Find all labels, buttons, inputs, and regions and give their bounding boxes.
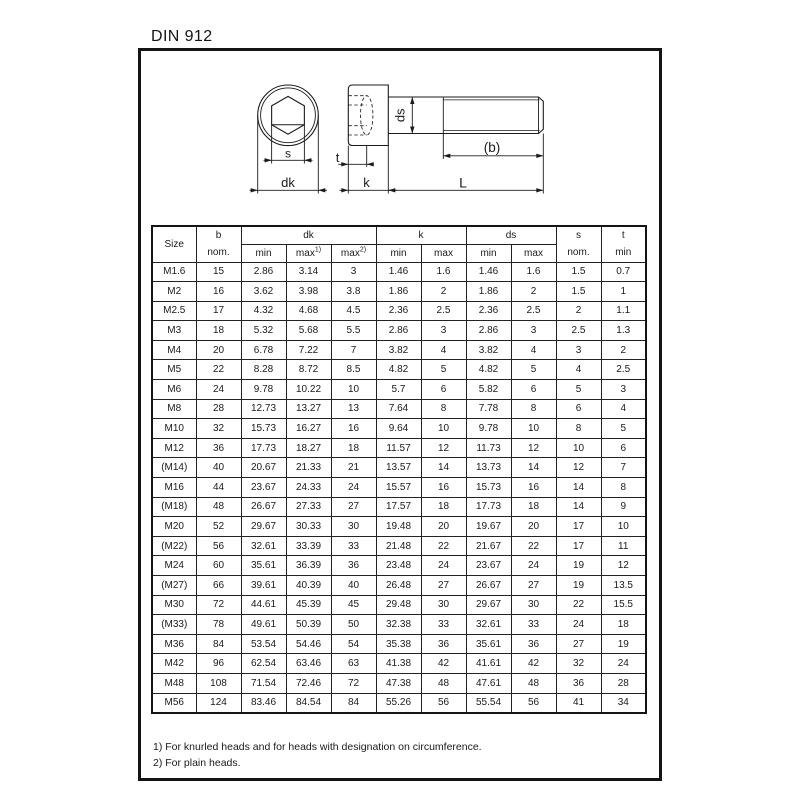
table-cell: 8.28 xyxy=(241,360,286,380)
table-cell: 54.46 xyxy=(286,634,331,654)
table-cell: 1.1 xyxy=(601,301,646,321)
table-cell: 24 xyxy=(196,380,241,400)
table-cell: 41.38 xyxy=(376,654,421,674)
table-cell: 36 xyxy=(511,634,556,654)
table-cell: 2.5 xyxy=(601,360,646,380)
hex-socket-outline xyxy=(272,96,305,134)
table-row: M205229.6730.333019.482019.67201710 xyxy=(152,517,646,537)
table-cell: 48 xyxy=(511,673,556,693)
table-cell: 50 xyxy=(331,615,376,635)
table-cell: 20 xyxy=(511,517,556,537)
table-cell: 1 xyxy=(601,282,646,302)
table-cell: 2.5 xyxy=(421,301,466,321)
table-cell: 29.67 xyxy=(241,517,286,537)
table-cell: 23.67 xyxy=(241,478,286,498)
table-cell: 12 xyxy=(556,458,601,478)
page-title: DIN 912 xyxy=(151,28,213,46)
table-cell: 24 xyxy=(556,615,601,635)
table-row: M429662.5463.466341.384241.61423224 xyxy=(152,654,646,674)
table-cell: 4.82 xyxy=(376,360,421,380)
table-cell: 29.67 xyxy=(466,595,511,615)
table-cell: 33.39 xyxy=(286,536,331,556)
table-cell: 19.48 xyxy=(376,517,421,537)
table-cell: 18.27 xyxy=(286,438,331,458)
col-header-k: k xyxy=(376,226,466,244)
table-cell: 41.61 xyxy=(466,654,511,674)
col-header-dk: dk xyxy=(241,226,376,244)
table-cell: 21.48 xyxy=(376,536,421,556)
col-subheader-dk-max1: max1) xyxy=(286,244,331,262)
table-cell: 2 xyxy=(421,282,466,302)
table-cell: 48 xyxy=(421,673,466,693)
table-cell: 56 xyxy=(511,693,556,713)
table-cell: 35.38 xyxy=(376,634,421,654)
screw-side-view: ds t k (b) xyxy=(336,85,544,194)
table-row: M4206.787.2273.8243.82432 xyxy=(152,340,646,360)
table-cell: 3 xyxy=(421,321,466,341)
table-cell: 19 xyxy=(556,556,601,576)
table-cell: 27.33 xyxy=(286,497,331,517)
table-cell: 5 xyxy=(556,380,601,400)
table-cell: 24 xyxy=(421,556,466,576)
table-row: M164423.6724.332415.571615.7316148 xyxy=(152,478,646,498)
table-cell: 4.68 xyxy=(286,301,331,321)
table-cell: 32.61 xyxy=(466,615,511,635)
table-cell: 6 xyxy=(511,380,556,400)
table-cell: 3.82 xyxy=(376,340,421,360)
table-cell: 2.5 xyxy=(511,301,556,321)
table-cell: 30.33 xyxy=(286,517,331,537)
table-cell: 26.67 xyxy=(241,497,286,517)
dk-max2-label: max xyxy=(341,248,360,259)
table-cell: 6 xyxy=(421,380,466,400)
table-row: M82812.7313.27137.6487.78864 xyxy=(152,399,646,419)
table-cell: 14 xyxy=(511,458,556,478)
dk-max2-footref: 2) xyxy=(360,246,366,253)
table-cell: 83.46 xyxy=(241,693,286,713)
table-cell: 9.78 xyxy=(466,419,511,439)
col-subheader-ds-max: max xyxy=(511,244,556,262)
table-cell: 40 xyxy=(331,576,376,596)
table-cell: 19.67 xyxy=(466,517,511,537)
dk-max1-footref: 1) xyxy=(315,246,321,253)
table-cell: 10 xyxy=(601,517,646,537)
table-cell: 39.61 xyxy=(241,576,286,596)
table-cell: M42 xyxy=(152,654,196,674)
table-cell: 16 xyxy=(421,478,466,498)
table-cell: M36 xyxy=(152,634,196,654)
table-cell: 5.5 xyxy=(331,321,376,341)
table-row: M368453.5454.465435.383635.61362719 xyxy=(152,634,646,654)
head-outline xyxy=(348,85,388,146)
table-cell: 21.33 xyxy=(286,458,331,478)
table-cell: M10 xyxy=(152,419,196,439)
table-cell: 14 xyxy=(556,497,601,517)
table-cell: 9.64 xyxy=(376,419,421,439)
head-top-view: s dk xyxy=(250,85,328,194)
table-cell: 24 xyxy=(511,556,556,576)
table-row: M4810871.5472.467247.384847.61483628 xyxy=(152,673,646,693)
table-cell: 2.5 xyxy=(556,321,601,341)
table-cell: 124 xyxy=(196,693,241,713)
table-cell: 0.7 xyxy=(601,262,646,282)
table-cell: 26.48 xyxy=(376,576,421,596)
table-cell: 4 xyxy=(601,399,646,419)
table-cell: 13 xyxy=(331,399,376,419)
table-cell: 2 xyxy=(601,340,646,360)
col-header-b: b nom. xyxy=(196,226,241,262)
table-cell: 72 xyxy=(196,595,241,615)
table-row: (M14)4020.6721.332113.571413.7314127 xyxy=(152,458,646,478)
table-cell: 40 xyxy=(196,458,241,478)
dim-label-b: (b) xyxy=(484,140,501,155)
table-row: M1.6152.863.1431.461.61.461.61.50.7 xyxy=(152,262,646,282)
table-cell: 63.46 xyxy=(286,654,331,674)
table-cell: 1.6 xyxy=(511,262,556,282)
table-cell: 41 xyxy=(556,693,601,713)
table-cell: 33 xyxy=(421,615,466,635)
table-cell: 52 xyxy=(196,517,241,537)
table-cell: 28 xyxy=(601,673,646,693)
table-cell: 12 xyxy=(511,438,556,458)
table-cell: 32.38 xyxy=(376,615,421,635)
table-cell: 8 xyxy=(556,419,601,439)
table-row: M5228.288.728.54.8254.82542.5 xyxy=(152,360,646,380)
table-cell: 1.46 xyxy=(376,262,421,282)
table-cell: 36 xyxy=(556,673,601,693)
dim-label-l: L xyxy=(459,175,467,191)
table-row: (M22)5632.6133.393321.482221.67221711 xyxy=(152,536,646,556)
table-cell: M5 xyxy=(152,360,196,380)
table-cell: 9.78 xyxy=(241,380,286,400)
table-cell: 18 xyxy=(331,438,376,458)
table-cell: 10.22 xyxy=(286,380,331,400)
table-cell: 32 xyxy=(196,419,241,439)
table-cell: 17.73 xyxy=(466,497,511,517)
table-cell: 4 xyxy=(556,360,601,380)
table-cell: 17.73 xyxy=(241,438,286,458)
table-cell: M48 xyxy=(152,673,196,693)
table-cell: 15 xyxy=(196,262,241,282)
table-cell: 20.67 xyxy=(241,458,286,478)
dim-t xyxy=(338,146,374,167)
table-cell: 4.82 xyxy=(466,360,511,380)
table-cell: 96 xyxy=(196,654,241,674)
table-cell: 24 xyxy=(331,478,376,498)
hex-socket-hidden xyxy=(349,96,373,135)
table-cell: 13.73 xyxy=(466,458,511,478)
table-cell: 15.5 xyxy=(601,595,646,615)
table-cell: M3 xyxy=(152,321,196,341)
table-cell: 34 xyxy=(601,693,646,713)
table-cell: 3 xyxy=(511,321,556,341)
header-row-groups: Size b nom. dk k ds s nom. t min xyxy=(152,226,646,244)
table-cell: 71.54 xyxy=(241,673,286,693)
table-cell: 72 xyxy=(331,673,376,693)
col-subheader-k-min: min xyxy=(376,244,421,262)
table-cell: 36.39 xyxy=(286,556,331,576)
table-cell: 5.32 xyxy=(241,321,286,341)
table-cell: 14 xyxy=(421,458,466,478)
table-cell: 16.27 xyxy=(286,419,331,439)
table-cell: 8.72 xyxy=(286,360,331,380)
col-subheader-dk-max2: max2) xyxy=(331,244,376,262)
table-row: M3185.325.685.52.8632.8632.51.3 xyxy=(152,321,646,341)
table-cell: M6 xyxy=(152,380,196,400)
table-cell: 15.73 xyxy=(466,478,511,498)
col-header-s-label: s xyxy=(557,227,601,244)
col-header-t: t min xyxy=(601,226,646,262)
spec-table: Size b nom. dk k ds s nom. t min min max… xyxy=(151,225,647,714)
table-cell: 3 xyxy=(601,380,646,400)
table-cell: (M27) xyxy=(152,576,196,596)
table-cell: 2 xyxy=(556,301,601,321)
table-cell: (M33) xyxy=(152,615,196,635)
table-cell: 4.5 xyxy=(331,301,376,321)
table-cell: M2.5 xyxy=(152,301,196,321)
table-cell: 27 xyxy=(556,634,601,654)
table-cell: 56 xyxy=(196,536,241,556)
table-cell: 47.38 xyxy=(376,673,421,693)
table-cell: 16 xyxy=(511,478,556,498)
table-cell: 4 xyxy=(421,340,466,360)
table-cell: M56 xyxy=(152,693,196,713)
table-cell: 35.61 xyxy=(241,556,286,576)
table-cell: 24.33 xyxy=(286,478,331,498)
table-cell: 26.67 xyxy=(466,576,511,596)
table-cell: 1.6 xyxy=(421,262,466,282)
table-cell: 8 xyxy=(511,399,556,419)
table-cell: 15.73 xyxy=(241,419,286,439)
table-cell: M24 xyxy=(152,556,196,576)
table-cell: 12 xyxy=(421,438,466,458)
table-cell: 12.73 xyxy=(241,399,286,419)
table-row: M307244.6145.394529.483029.67302215.5 xyxy=(152,595,646,615)
table-cell: 36 xyxy=(196,438,241,458)
table-cell: 33 xyxy=(511,615,556,635)
table-cell: 3.14 xyxy=(286,262,331,282)
col-subheader-k-max: max xyxy=(421,244,466,262)
table-cell: 1.86 xyxy=(466,282,511,302)
footnote-1: 1) For knurled heads and for heads with … xyxy=(153,741,482,753)
table-cell: 27 xyxy=(331,497,376,517)
table-cell: 19 xyxy=(556,576,601,596)
table-cell: (M22) xyxy=(152,536,196,556)
col-header-b-label: b xyxy=(197,227,241,244)
table-cell: M16 xyxy=(152,478,196,498)
table-cell: 44 xyxy=(196,478,241,498)
col-header-t-label: t xyxy=(602,227,646,244)
table-cell: 11 xyxy=(601,536,646,556)
table-cell: 3.8 xyxy=(331,282,376,302)
table-cell: 5 xyxy=(421,360,466,380)
table-cell: 1.5 xyxy=(556,282,601,302)
col-header-size: Size xyxy=(152,226,196,262)
table-cell: 17 xyxy=(556,536,601,556)
table-cell: 2.86 xyxy=(466,321,511,341)
table-cell: 36 xyxy=(331,556,376,576)
col-subheader-ds-min: min xyxy=(466,244,511,262)
table-cell: 17 xyxy=(196,301,241,321)
table-cell: 22 xyxy=(196,360,241,380)
table-cell: 66 xyxy=(196,576,241,596)
table-cell: 12 xyxy=(601,556,646,576)
table-cell: 5.7 xyxy=(376,380,421,400)
table-cell: 7.22 xyxy=(286,340,331,360)
table-cell: 10 xyxy=(331,380,376,400)
table-cell: 9 xyxy=(601,497,646,517)
technical-drawing: s dk xyxy=(240,58,560,200)
col-header-ds: ds xyxy=(466,226,556,244)
table-cell: 27 xyxy=(511,576,556,596)
spec-table-body: M1.6152.863.1431.461.61.461.61.50.7M2163… xyxy=(152,262,646,713)
table-cell: 17 xyxy=(556,517,601,537)
table-cell: 10 xyxy=(511,419,556,439)
table-cell: 84 xyxy=(331,693,376,713)
table-cell: 55.26 xyxy=(376,693,421,713)
table-cell: 53.54 xyxy=(241,634,286,654)
table-cell: 30 xyxy=(511,595,556,615)
col-header-b-sub: nom. xyxy=(197,244,241,261)
table-cell: 47.61 xyxy=(466,673,511,693)
table-row: M103215.7316.27169.64109.781085 xyxy=(152,419,646,439)
table-cell: 42 xyxy=(511,654,556,674)
table-cell: 30 xyxy=(331,517,376,537)
table-cell: 7.78 xyxy=(466,399,511,419)
table-cell: 49.61 xyxy=(241,615,286,635)
table-cell: 8.5 xyxy=(331,360,376,380)
dk-max1-label: max xyxy=(296,248,315,259)
table-cell: 2.86 xyxy=(376,321,421,341)
table-row: M5612483.4684.548455.265655.54564134 xyxy=(152,693,646,713)
table-cell: 28 xyxy=(196,399,241,419)
table-cell: 63 xyxy=(331,654,376,674)
table-cell: 48 xyxy=(196,497,241,517)
table-cell: 18 xyxy=(196,321,241,341)
din-912-sheet: { "page": { "title": "DIN 912" }, "drawi… xyxy=(0,0,800,800)
table-cell: 24 xyxy=(601,654,646,674)
table-row: M123617.7318.271811.571211.7312106 xyxy=(152,438,646,458)
table-cell: 27 xyxy=(421,576,466,596)
table-cell: 4 xyxy=(511,340,556,360)
table-cell: 60 xyxy=(196,556,241,576)
table-cell: 22 xyxy=(556,595,601,615)
table-cell: 7 xyxy=(601,458,646,478)
table-cell: 10 xyxy=(556,438,601,458)
footnote-2: 2) For plain heads. xyxy=(153,757,241,769)
table-cell: 7.64 xyxy=(376,399,421,419)
table-cell: 14 xyxy=(556,478,601,498)
table-cell: 1.5 xyxy=(556,262,601,282)
table-cell: 55.54 xyxy=(466,693,511,713)
table-row: (M18)4826.6727.332717.571817.7318149 xyxy=(152,497,646,517)
table-cell: M4 xyxy=(152,340,196,360)
table-cell: M2 xyxy=(152,282,196,302)
table-cell: 30 xyxy=(421,595,466,615)
table-cell: 42 xyxy=(421,654,466,674)
table-cell: 45.39 xyxy=(286,595,331,615)
table-cell: 56 xyxy=(421,693,466,713)
table-cell: 5 xyxy=(511,360,556,380)
table-cell: 84 xyxy=(196,634,241,654)
table-cell: 22 xyxy=(511,536,556,556)
table-cell: M30 xyxy=(152,595,196,615)
table-cell: 54 xyxy=(331,634,376,654)
table-row: (M27)6639.6140.394026.482726.67271913.5 xyxy=(152,576,646,596)
col-header-s-sub: nom. xyxy=(557,244,601,261)
table-cell: 18 xyxy=(511,497,556,517)
table-cell: 22 xyxy=(421,536,466,556)
table-cell: 72.46 xyxy=(286,673,331,693)
table-cell: (M14) xyxy=(152,458,196,478)
dim-ds xyxy=(410,97,414,134)
col-subheader-dk-min: min xyxy=(241,244,286,262)
table-cell: 6.78 xyxy=(241,340,286,360)
table-cell: 62.54 xyxy=(241,654,286,674)
table-row: M2.5174.324.684.52.362.52.362.521.1 xyxy=(152,301,646,321)
table-cell: 7 xyxy=(331,340,376,360)
table-cell: 2.36 xyxy=(466,301,511,321)
table-cell: M8 xyxy=(152,399,196,419)
dim-label-s: s xyxy=(285,147,291,161)
dim-label-k: k xyxy=(363,175,370,190)
table-cell: 45 xyxy=(331,595,376,615)
table-cell: M20 xyxy=(152,517,196,537)
table-cell: 2 xyxy=(511,282,556,302)
col-header-s: s nom. xyxy=(556,226,601,262)
table-cell: 13.57 xyxy=(376,458,421,478)
table-cell: 15.57 xyxy=(376,478,421,498)
table-cell: M1.6 xyxy=(152,262,196,282)
table-cell: 21.67 xyxy=(466,536,511,556)
table-cell: 32.61 xyxy=(241,536,286,556)
col-header-t-sub: min xyxy=(602,244,646,261)
table-cell: 50.39 xyxy=(286,615,331,635)
table-cell: 40.39 xyxy=(286,576,331,596)
table-cell: 29.48 xyxy=(376,595,421,615)
table-cell: 18 xyxy=(421,497,466,517)
table-cell: 1.46 xyxy=(466,262,511,282)
table-row: M246035.6136.393623.482423.67241912 xyxy=(152,556,646,576)
table-cell: 2.36 xyxy=(376,301,421,321)
table-row: M2163.623.983.81.8621.8621.51 xyxy=(152,282,646,302)
table-cell: 13.27 xyxy=(286,399,331,419)
table-cell: 3.98 xyxy=(286,282,331,302)
thread-outline xyxy=(443,97,543,134)
table-cell: 32 xyxy=(556,654,601,674)
table-cell: 8 xyxy=(601,478,646,498)
table-cell: 108 xyxy=(196,673,241,693)
table-cell: 13.5 xyxy=(601,576,646,596)
table-cell: 4.32 xyxy=(241,301,286,321)
table-cell: 16 xyxy=(331,419,376,439)
table-cell: 3.82 xyxy=(466,340,511,360)
table-cell: 5.68 xyxy=(286,321,331,341)
table-cell: 2.86 xyxy=(241,262,286,282)
table-cell: 19 xyxy=(601,634,646,654)
table-cell: 11.73 xyxy=(466,438,511,458)
table-cell: 17.57 xyxy=(376,497,421,517)
table-cell: 35.61 xyxy=(466,634,511,654)
table-cell: 3 xyxy=(331,262,376,282)
dim-label-dk: dk xyxy=(281,175,295,190)
table-cell: 8 xyxy=(421,399,466,419)
table-cell: 1.3 xyxy=(601,321,646,341)
table-cell: 78 xyxy=(196,615,241,635)
table-row: M6249.7810.22105.765.82653 xyxy=(152,380,646,400)
table-cell: 5 xyxy=(601,419,646,439)
table-cell: 20 xyxy=(421,517,466,537)
